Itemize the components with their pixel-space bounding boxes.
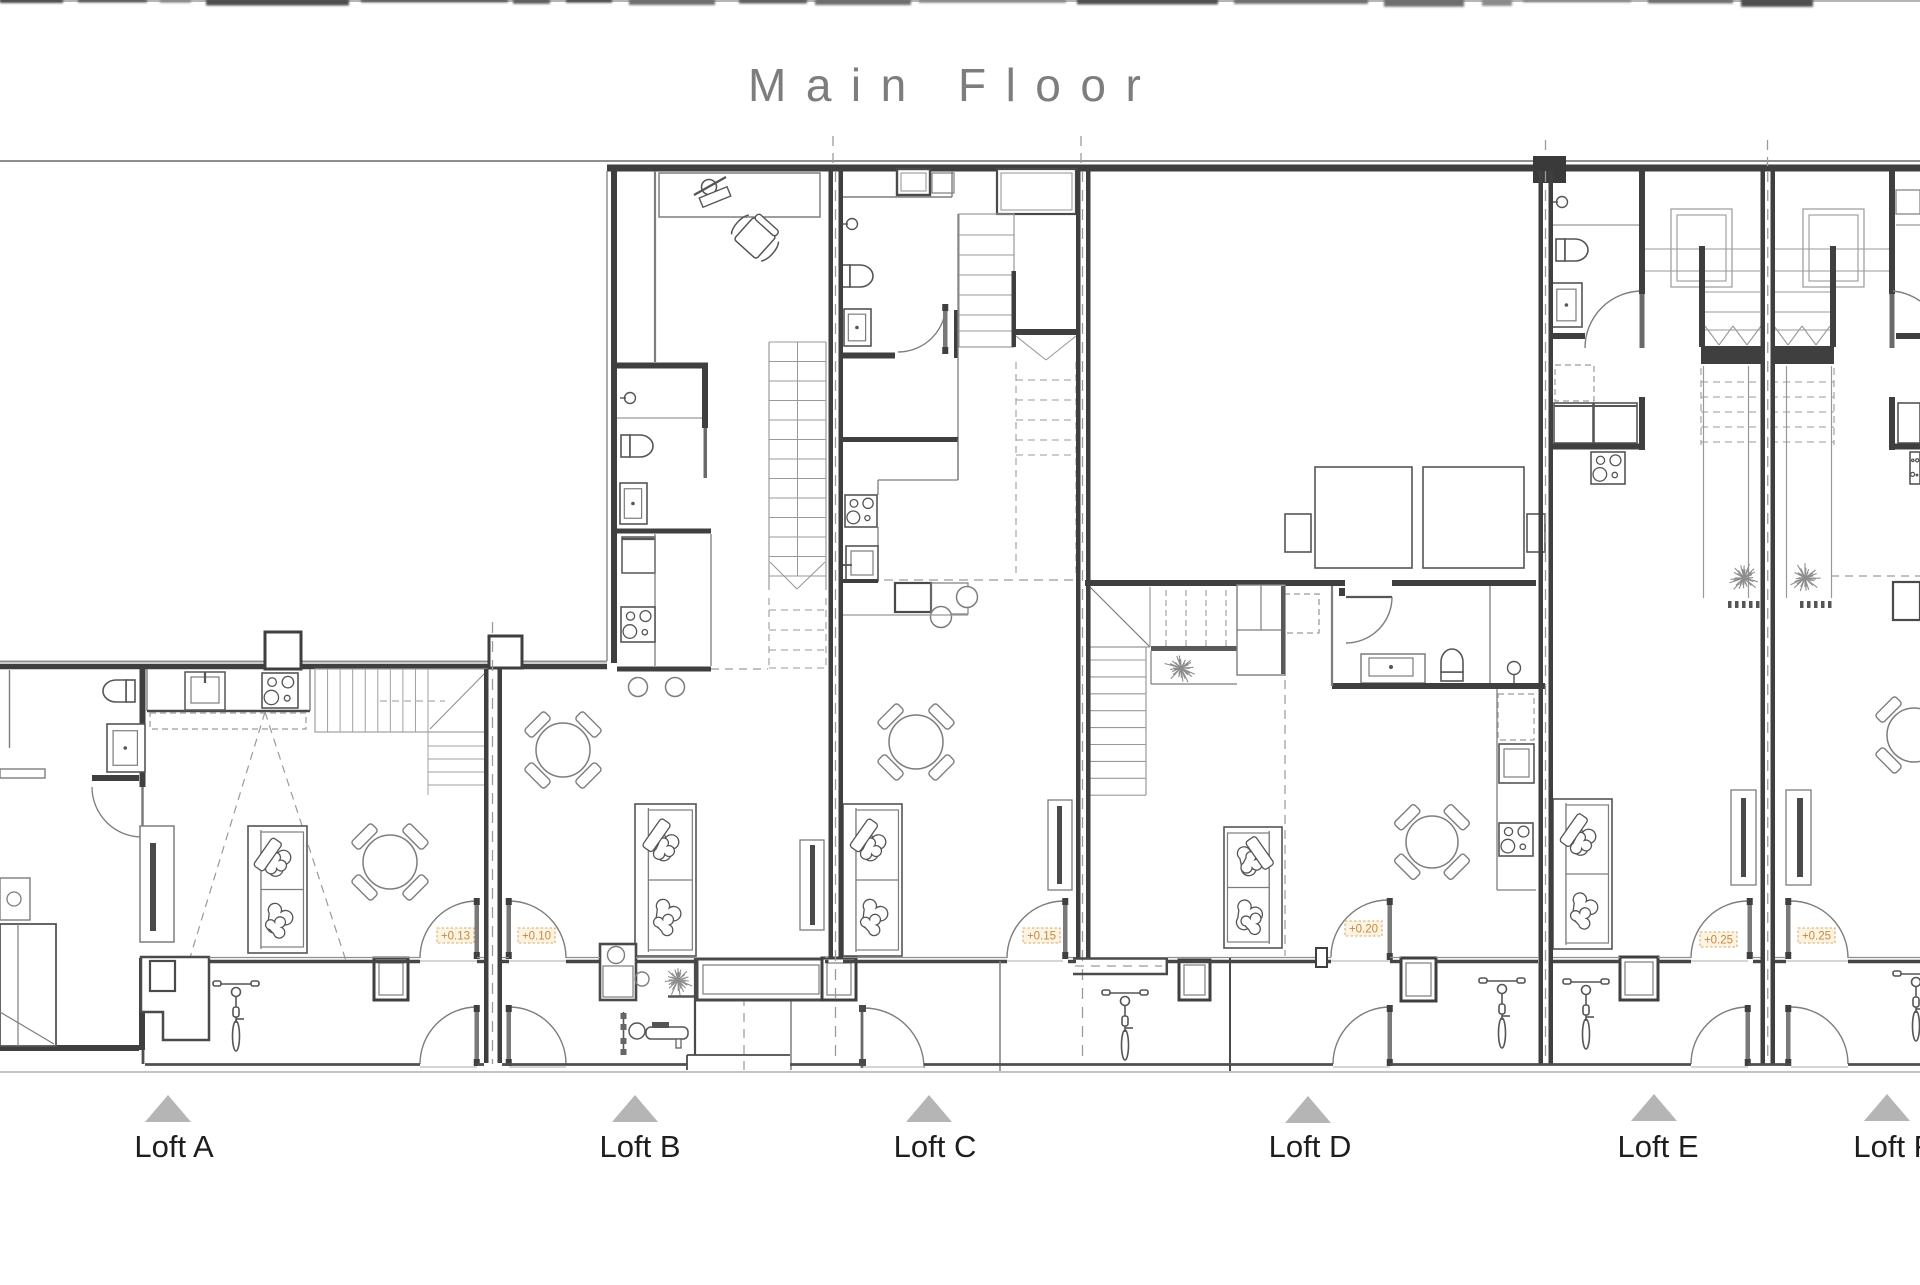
svg-text:+0.10: +0.10: [522, 931, 551, 943]
svg-text:Main Floor: Main Floor: [748, 59, 1160, 111]
svg-text:+0.20: +0.20: [1349, 924, 1378, 936]
svg-text:Loft C: Loft C: [894, 1129, 977, 1164]
svg-text:+0.25: +0.25: [1704, 935, 1733, 947]
svg-text:Loft B: Loft B: [600, 1129, 681, 1164]
svg-text:Loft E: Loft E: [1618, 1129, 1699, 1164]
svg-text:Loft A: Loft A: [134, 1129, 214, 1164]
svg-text:+0.13: +0.13: [441, 931, 470, 943]
svg-text:+0.25: +0.25: [1802, 931, 1831, 943]
svg-text:Loft F: Loft F: [1853, 1129, 1920, 1164]
svg-text:+0.15: +0.15: [1027, 931, 1056, 943]
svg-text:Loft D: Loft D: [1269, 1129, 1352, 1164]
